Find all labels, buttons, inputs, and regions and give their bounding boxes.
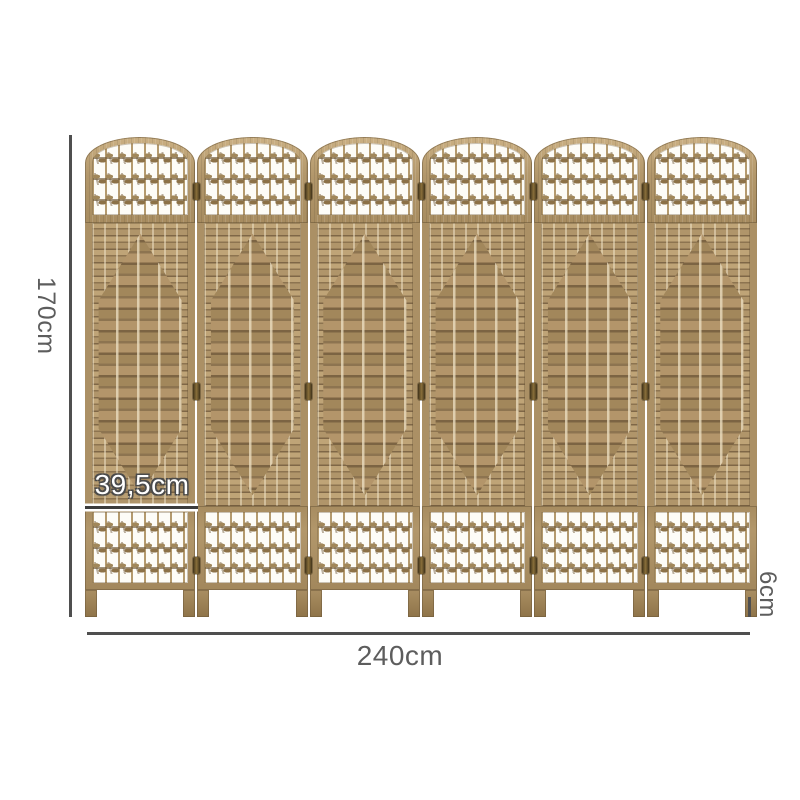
panel-hinge xyxy=(530,183,537,200)
panel-arch-section xyxy=(422,137,532,223)
panel-woven-section xyxy=(534,223,644,506)
panel-hinge xyxy=(418,383,425,400)
woven-knot-row xyxy=(93,152,187,164)
woven-knot-row xyxy=(205,194,299,206)
panel-hinge xyxy=(305,183,312,200)
arch-lattice xyxy=(429,143,525,215)
panel-woven-section xyxy=(85,223,195,506)
panel-lattice-section xyxy=(534,506,644,590)
panel-legs xyxy=(422,590,532,617)
arch-lattice xyxy=(654,143,750,215)
panel-hinge xyxy=(305,557,312,574)
woven-knot-row xyxy=(655,542,749,554)
woven-knot-row xyxy=(430,173,524,185)
panel-hinge xyxy=(193,183,200,200)
bottom-lattice xyxy=(654,512,750,583)
woven-knot-row xyxy=(318,173,412,185)
panel-lattice-section xyxy=(197,506,307,590)
woven-knot-row xyxy=(430,194,524,206)
panel-legs xyxy=(534,590,644,617)
arch-lattice xyxy=(204,143,300,215)
woven-knot-row xyxy=(205,521,299,533)
divider-panel xyxy=(85,137,195,617)
woven-knot-row xyxy=(93,194,187,206)
panel-leg xyxy=(183,590,195,617)
panel-leg xyxy=(422,590,434,617)
room-divider xyxy=(85,137,757,617)
woven-knot-row xyxy=(655,194,749,206)
height-dimension-label: 170cm xyxy=(31,277,60,355)
woven-knot-row xyxy=(205,173,299,185)
bottom-lattice xyxy=(429,512,525,583)
panel-leg xyxy=(633,590,645,617)
woven-knot-row xyxy=(655,173,749,185)
panel-woven-section xyxy=(310,223,420,506)
panel-leg xyxy=(296,590,308,617)
woven-knot-row xyxy=(430,152,524,164)
panel-leg xyxy=(520,590,532,617)
panel-leg xyxy=(85,590,97,617)
woven-knot-row xyxy=(430,542,524,554)
panel-leg xyxy=(534,590,546,617)
panel-lattice-section xyxy=(85,506,195,590)
woven-knot-row xyxy=(318,542,412,554)
woven-knot-row xyxy=(318,152,412,164)
panel-arch-section xyxy=(85,137,195,223)
divider-panel xyxy=(310,137,420,617)
woven-knot-row xyxy=(542,173,636,185)
arch-lattice xyxy=(317,143,413,215)
panel-legs xyxy=(85,590,195,617)
panel-legs xyxy=(310,590,420,617)
panel-width-dimension-line xyxy=(85,506,198,509)
divider-panel xyxy=(647,137,757,617)
woven-knot-row xyxy=(542,562,636,574)
divider-panel xyxy=(422,137,532,617)
width-dimension-line xyxy=(87,632,750,635)
panel-hinge xyxy=(530,383,537,400)
panel-lattice-section xyxy=(647,506,757,590)
panel-hinge xyxy=(530,557,537,574)
depth-dimension-label: 6cm xyxy=(753,571,781,618)
panel-arch-section xyxy=(534,137,644,223)
depth-dimension-line xyxy=(748,597,751,617)
woven-knot-row xyxy=(318,521,412,533)
woven-knot-row xyxy=(430,521,524,533)
bottom-lattice xyxy=(92,512,188,583)
panel-legs xyxy=(197,590,307,617)
arch-lattice xyxy=(541,143,637,215)
product-dimension-image: 170cm 240cm 39,5cm 6cm xyxy=(0,0,800,800)
panel-leg xyxy=(197,590,209,617)
woven-knot-row xyxy=(93,562,187,574)
panel-hinge xyxy=(642,183,649,200)
woven-knot-row xyxy=(655,562,749,574)
panel-hinge xyxy=(305,383,312,400)
panel-hinge xyxy=(418,183,425,200)
panel-leg xyxy=(647,590,659,617)
bottom-lattice xyxy=(541,512,637,583)
woven-knot-row xyxy=(318,194,412,206)
woven-knot-row xyxy=(93,173,187,185)
woven-knot-row xyxy=(430,562,524,574)
panel-arch-section xyxy=(197,137,307,223)
divider-panel xyxy=(534,137,644,617)
woven-knot-row xyxy=(205,542,299,554)
panel-arch-section xyxy=(310,137,420,223)
woven-knot-row xyxy=(655,521,749,533)
panel-woven-section xyxy=(422,223,532,506)
woven-knot-row xyxy=(655,152,749,164)
panel-hinge xyxy=(642,557,649,574)
height-dimension-line xyxy=(69,135,72,617)
panel-woven-section xyxy=(197,223,307,506)
woven-knot-row xyxy=(93,521,187,533)
panel-hinge xyxy=(642,383,649,400)
bottom-lattice xyxy=(317,512,413,583)
panel-leg xyxy=(408,590,420,617)
panel-hinge xyxy=(418,557,425,574)
bottom-lattice xyxy=(204,512,300,583)
arch-lattice xyxy=(92,143,188,215)
divider-panel xyxy=(197,137,307,617)
panel-lattice-section xyxy=(310,506,420,590)
woven-knot-row xyxy=(93,542,187,554)
woven-knot-row xyxy=(318,562,412,574)
panel-width-dimension-label: 39,5cm xyxy=(87,469,197,501)
woven-knot-row xyxy=(542,152,636,164)
woven-knot-row xyxy=(542,542,636,554)
panel-arch-section xyxy=(647,137,757,223)
panel-hinge xyxy=(193,557,200,574)
panel-lattice-section xyxy=(422,506,532,590)
woven-knot-row xyxy=(542,521,636,533)
panel-leg xyxy=(310,590,322,617)
woven-knot-row xyxy=(205,562,299,574)
panel-woven-section xyxy=(647,223,757,506)
woven-knot-row xyxy=(542,194,636,206)
width-dimension-label: 240cm xyxy=(300,640,500,672)
woven-knot-row xyxy=(205,152,299,164)
panel-hinge xyxy=(193,383,200,400)
panel-legs xyxy=(647,590,757,617)
